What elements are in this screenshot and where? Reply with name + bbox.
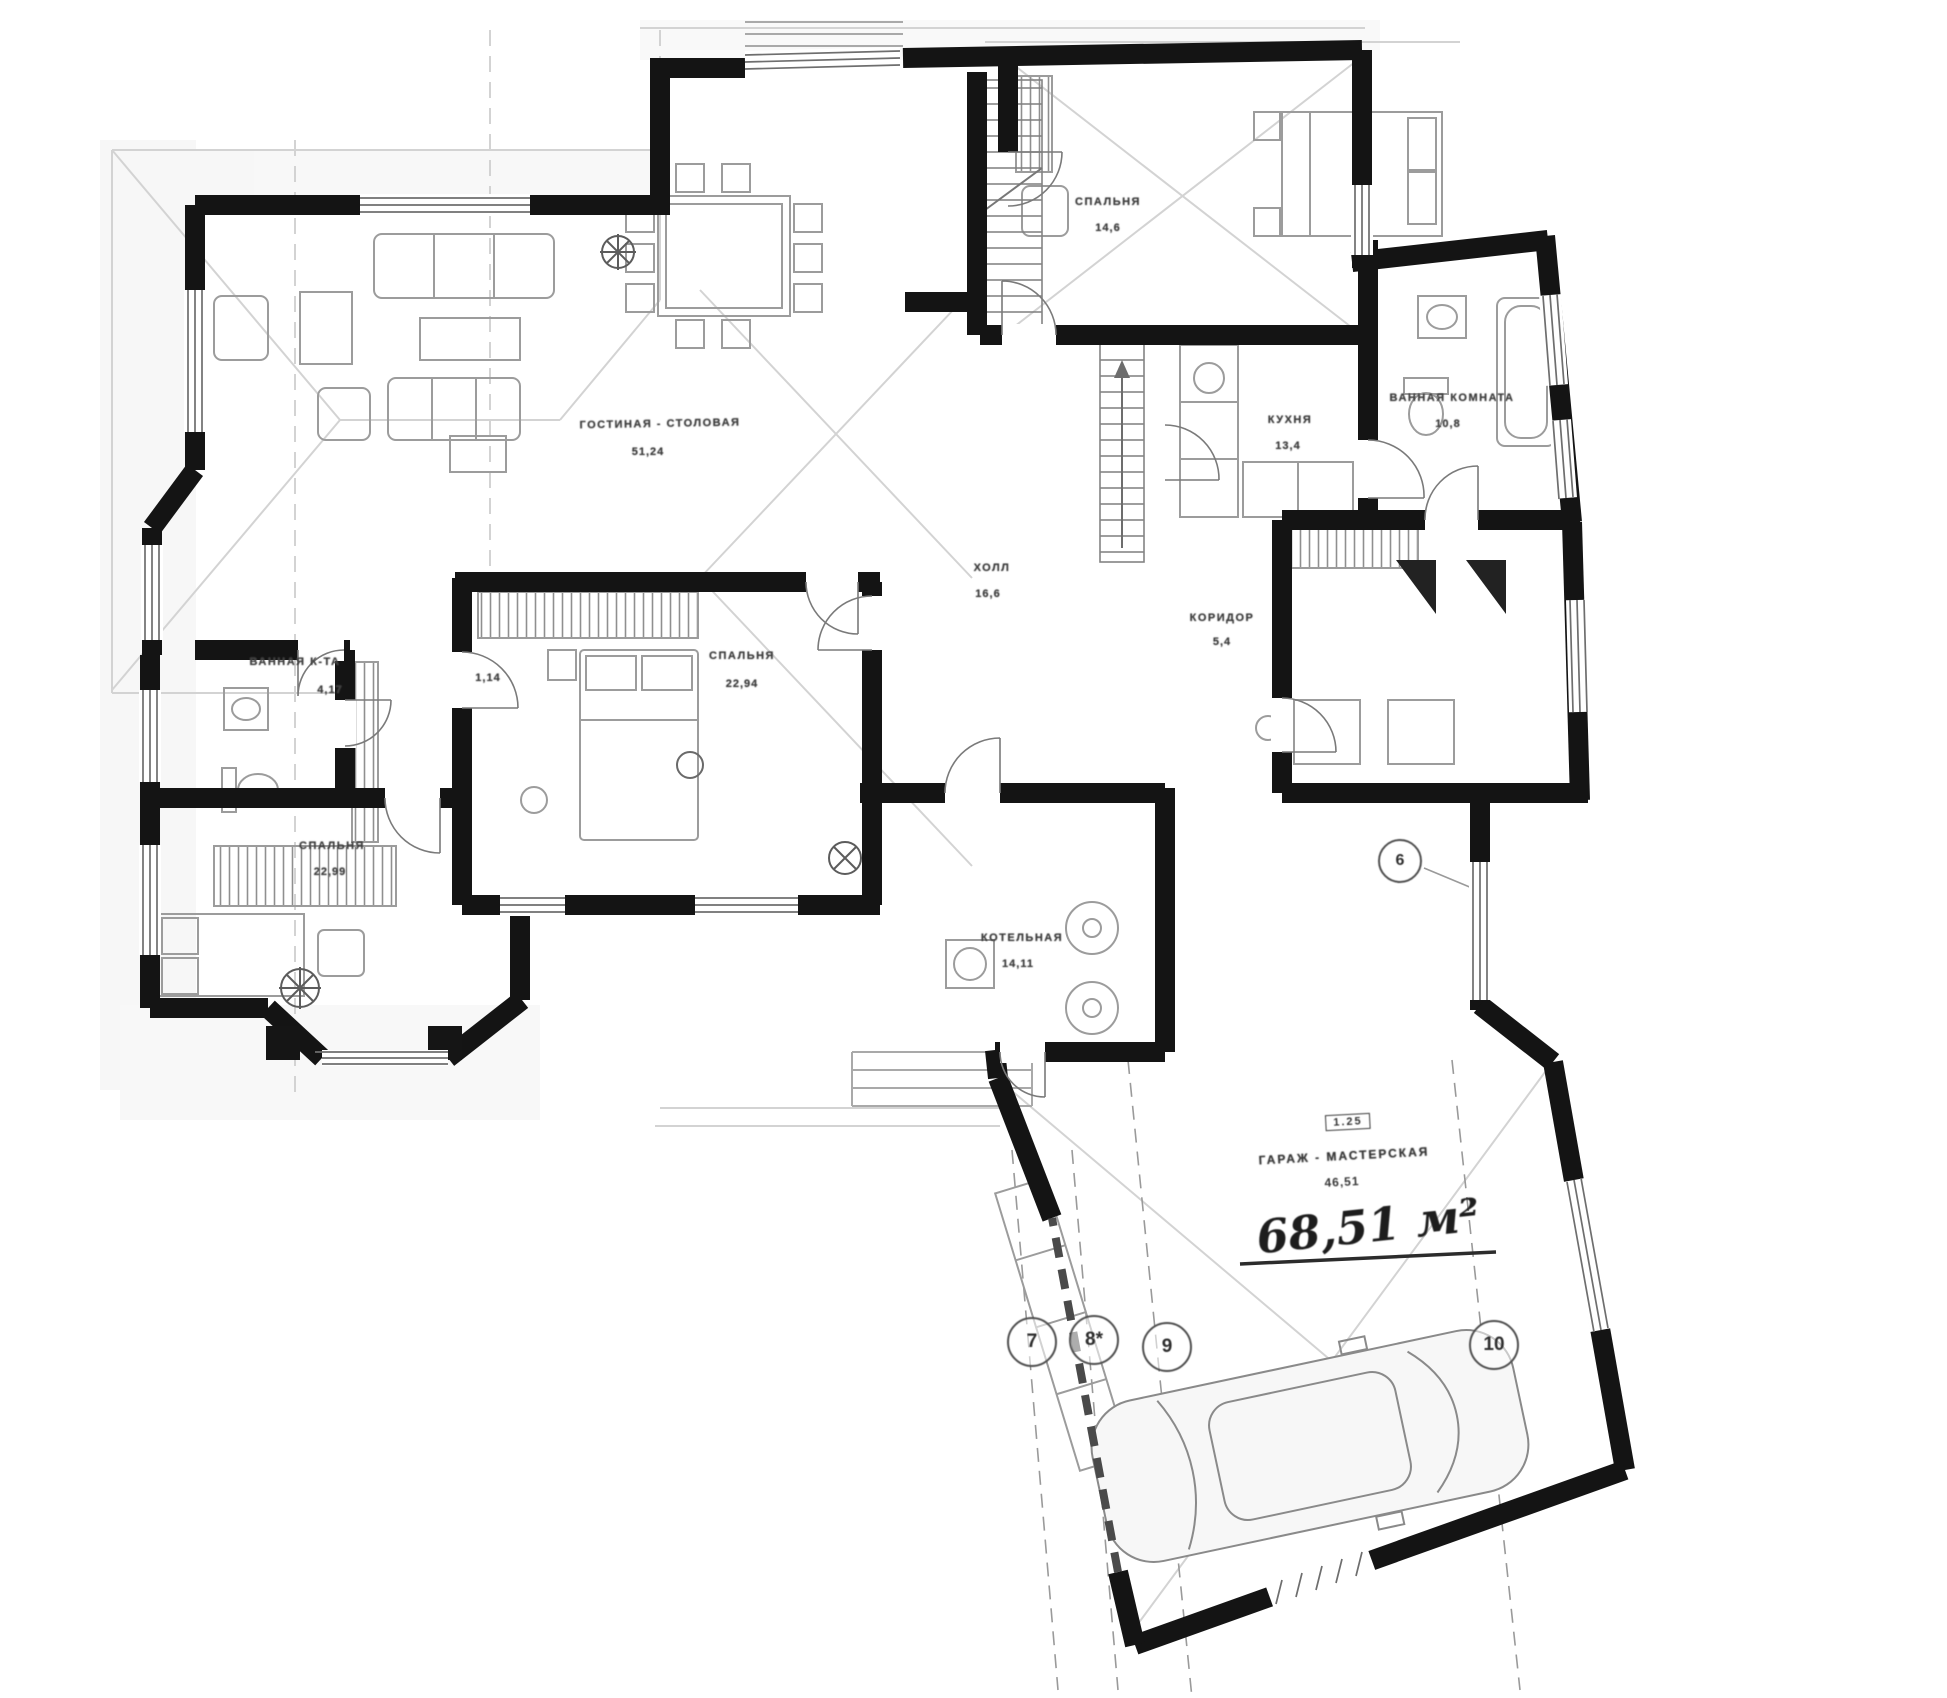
room-label-bedroom-ne: СПАЛЬНЯ xyxy=(1075,196,1141,208)
terrace-column xyxy=(266,1026,300,1060)
plant-icon xyxy=(600,234,636,270)
bed xyxy=(1254,112,1442,236)
wardrobe xyxy=(478,592,698,638)
room-label-bedroom-sw: СПАЛЬНЯ xyxy=(299,840,365,852)
room-label-kitchen: КУХНЯ xyxy=(1268,414,1313,426)
room-label-bedroom-c: СПАЛЬНЯ xyxy=(709,650,775,662)
coffee-table xyxy=(420,318,520,360)
room-label-bathroom-w: ВАННАЯ К-ТА xyxy=(250,656,341,668)
axis-marker-10: 10 xyxy=(1469,1320,1519,1370)
washbasin xyxy=(1418,296,1466,338)
furniture-layer xyxy=(158,76,1555,1585)
room-area-bedroom-ne: 14,6 xyxy=(1095,222,1120,234)
room-area-hall: 16,6 xyxy=(975,588,1000,600)
room-area-bathroom-w: 4,17 xyxy=(317,684,342,696)
floor-plan-drawing xyxy=(0,0,1947,1698)
desk xyxy=(1294,700,1360,764)
wardrobe xyxy=(214,846,396,906)
bed xyxy=(548,650,698,840)
sofa xyxy=(374,234,554,440)
kitchen-counter xyxy=(1180,345,1353,517)
room-label-hall: ХОЛЛ xyxy=(974,562,1011,574)
armchair xyxy=(214,296,268,360)
axis-marker-7: 7 xyxy=(1007,1317,1057,1367)
cupboard-triangle xyxy=(1396,560,1436,614)
floor-plan-page: ГОСТИНАЯ - СТОЛОВАЯ 51,24 СПАЛЬНЯ 14,6 К… xyxy=(0,0,1947,1698)
axis-marker-6: 6 xyxy=(1378,839,1422,883)
plant-icon xyxy=(279,967,321,1009)
shelving xyxy=(352,662,378,842)
room-area-kitchen: 13,4 xyxy=(1275,440,1300,452)
room-area-corridor: 5,4 xyxy=(1213,636,1231,648)
room-area-garage: 46,51 xyxy=(1324,1174,1360,1190)
armchair xyxy=(318,388,370,440)
axis-marker-9: 9 xyxy=(1142,1322,1192,1372)
room-label-corridor: КОРИДОР xyxy=(1190,612,1255,624)
scan-haze xyxy=(100,20,1380,1120)
door-arcs xyxy=(298,152,1478,1097)
room-label-bathroom-e: ВАННАЯ КОМНАТА xyxy=(1390,392,1515,404)
plant-icon xyxy=(829,842,861,874)
room-area-living: 51,24 xyxy=(632,446,665,458)
axis-grid-lines xyxy=(1012,868,1520,1698)
room-area-bedroom-sw: 22,99 xyxy=(314,866,347,878)
room-area-bathroom-e: 10,8 xyxy=(1435,418,1460,430)
room-area-bedroom-c: 22,94 xyxy=(726,678,759,690)
cabinet xyxy=(300,292,352,364)
desk xyxy=(1388,700,1454,764)
armchair xyxy=(318,930,364,976)
washbasin xyxy=(224,688,268,730)
sideboard xyxy=(450,436,506,472)
room-area-boiler: 14,11 xyxy=(1002,958,1034,970)
room-area-closet: 1,14 xyxy=(475,672,500,684)
stool xyxy=(521,787,547,813)
axis-marker-8: 8* xyxy=(1069,1315,1119,1365)
plant-icon xyxy=(677,752,703,778)
garage-code: 1.25 xyxy=(1325,1113,1371,1131)
cupboard-triangle xyxy=(1466,560,1506,614)
room-label-boiler: КОТЕЛЬНАЯ xyxy=(981,932,1063,944)
